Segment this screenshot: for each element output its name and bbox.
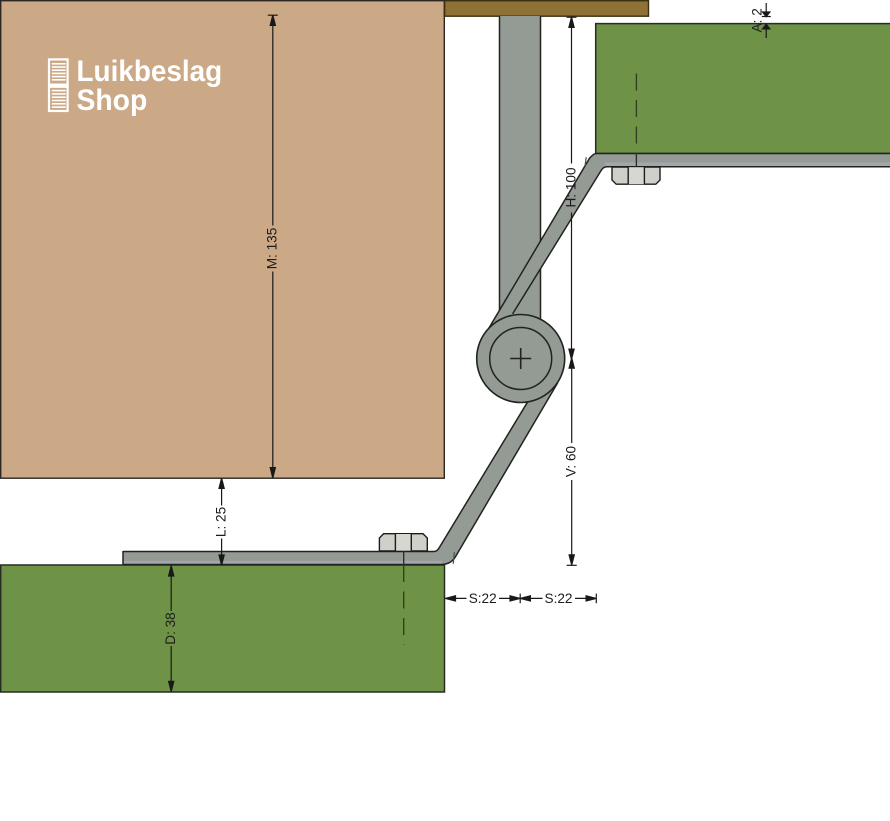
svg-text:S:22: S:22 <box>545 591 573 606</box>
svg-text:D: 38: D: 38 <box>163 612 178 645</box>
svg-text:H: 100: H: 100 <box>564 167 579 207</box>
svg-text:A: 2: A: 2 <box>749 8 764 32</box>
svg-text:Luikbeslag: Luikbeslag <box>77 55 223 88</box>
svg-text:L: 25: L: 25 <box>213 507 228 537</box>
svg-text:S:22: S:22 <box>469 591 497 606</box>
svg-text:V: 60: V: 60 <box>564 445 579 477</box>
svg-text:Shop: Shop <box>77 85 148 117</box>
svg-text:M: 135: M: 135 <box>265 228 280 270</box>
